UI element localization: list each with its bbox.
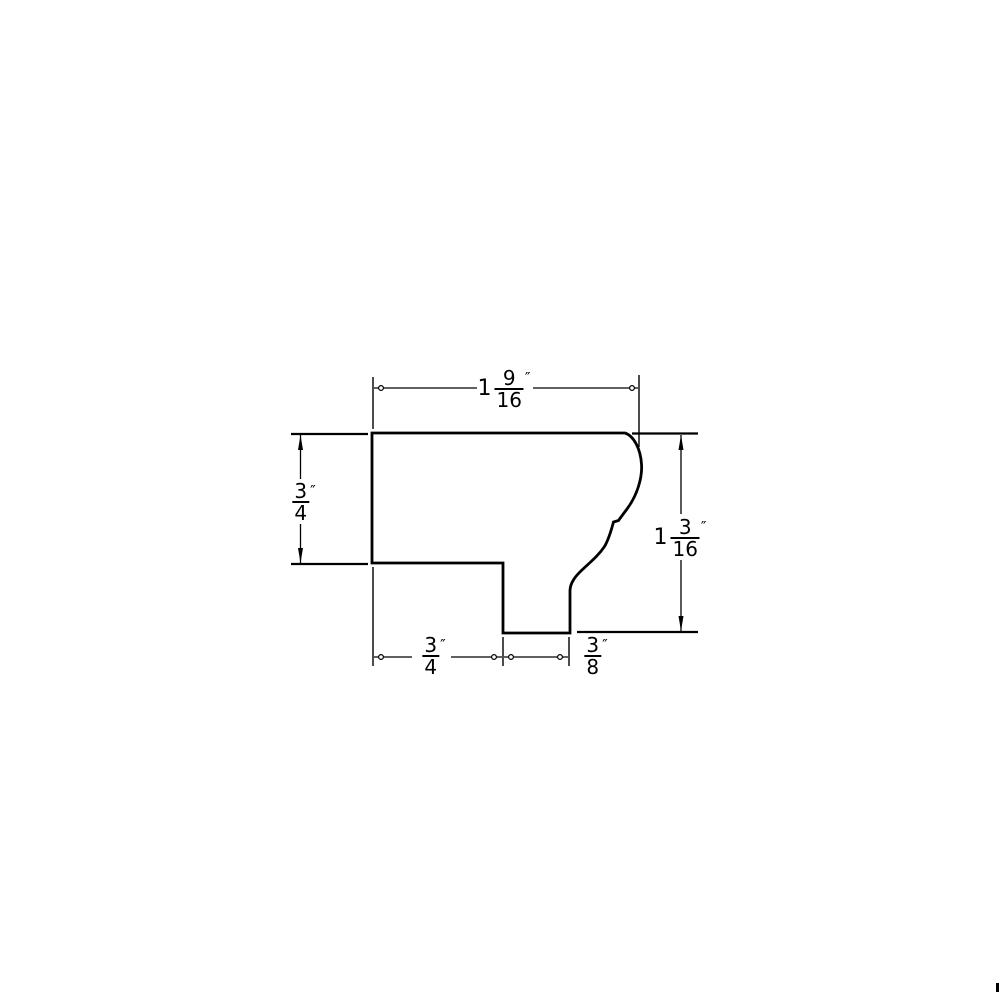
dim-label-top-width: 1 9 16 ″ <box>477 370 530 408</box>
bottom-left-dim-terminator-right <box>492 655 497 660</box>
bottom-left-dim-terminator-left <box>379 655 384 660</box>
bottom-notch-dim-terminator-right <box>558 655 563 660</box>
dim-denominator: 4 <box>292 501 309 521</box>
dim-numerator: 3 <box>584 637 601 655</box>
top-dim-terminator-left <box>379 386 384 391</box>
dim-fraction: 3 16 <box>670 519 699 557</box>
dim-numerator: 3 <box>677 519 694 537</box>
dim-denominator: 16 <box>494 388 523 408</box>
left-dim-arrow-top <box>298 435 303 450</box>
dim-whole-number: 1 <box>653 529 667 547</box>
dim-numerator: 3 <box>292 483 309 501</box>
dim-label-right-height: 1 3 16 ″ <box>653 519 706 557</box>
profile-drawing-svg <box>0 0 1000 1000</box>
drawing-canvas: 1 9 16 ″ 3 4 ″ 1 3 16 ″ 3 4 ″ <box>0 0 1000 1000</box>
dim-label-left-height: 3 4 ″ <box>292 483 315 521</box>
inch-mark: ″ <box>440 639 446 651</box>
inch-mark: ″ <box>310 485 316 497</box>
dim-whole-number: 1 <box>477 380 491 398</box>
dim-denominator: 16 <box>670 537 699 557</box>
edge-artifact-mark <box>996 983 999 992</box>
dim-fraction: 3 4 <box>422 637 439 675</box>
dim-numerator: 9 <box>501 370 518 388</box>
bottom-notch-dim-terminator-left <box>509 655 514 660</box>
dim-denominator: 8 <box>584 655 601 675</box>
dim-fraction: 9 16 <box>494 370 523 408</box>
dim-numerator: 3 <box>422 637 439 655</box>
left-dim-arrow-bottom <box>298 548 303 563</box>
inch-mark: ″ <box>602 639 608 651</box>
dim-denominator: 4 <box>422 655 439 675</box>
top-dim-terminator-right <box>630 386 635 391</box>
inch-mark: ″ <box>701 521 707 533</box>
dim-fraction: 3 8 <box>584 637 601 675</box>
dim-label-bottom-left-width: 3 4 ″ <box>422 637 445 675</box>
right-dim-arrow-bottom <box>679 616 684 631</box>
inch-mark: ″ <box>525 372 531 384</box>
dim-label-bottom-notch-width: 3 8 ″ <box>584 637 607 675</box>
dim-fraction: 3 4 <box>292 483 309 521</box>
right-dim-arrow-top <box>679 435 684 450</box>
molding-profile-outline <box>372 433 642 633</box>
